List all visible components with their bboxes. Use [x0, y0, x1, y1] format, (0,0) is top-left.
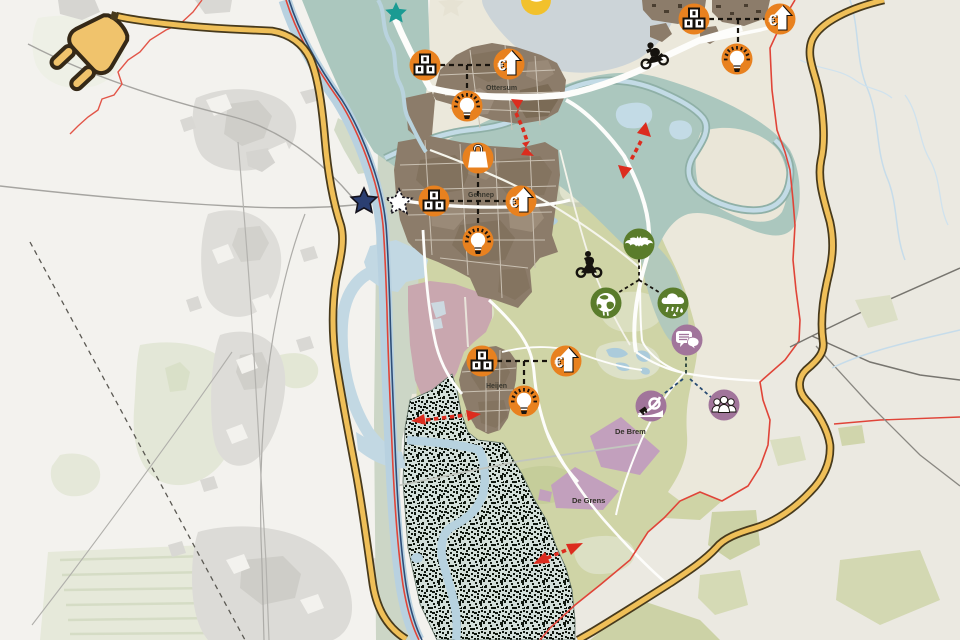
svg-text:De Grens: De Grens — [572, 496, 605, 505]
svg-text:De Brem: De Brem — [615, 427, 646, 436]
svg-text:Gennep: Gennep — [468, 192, 494, 199]
svg-text:Heijen: Heijen — [486, 383, 507, 390]
svg-text:Ottersum: Ottersum — [486, 85, 517, 92]
